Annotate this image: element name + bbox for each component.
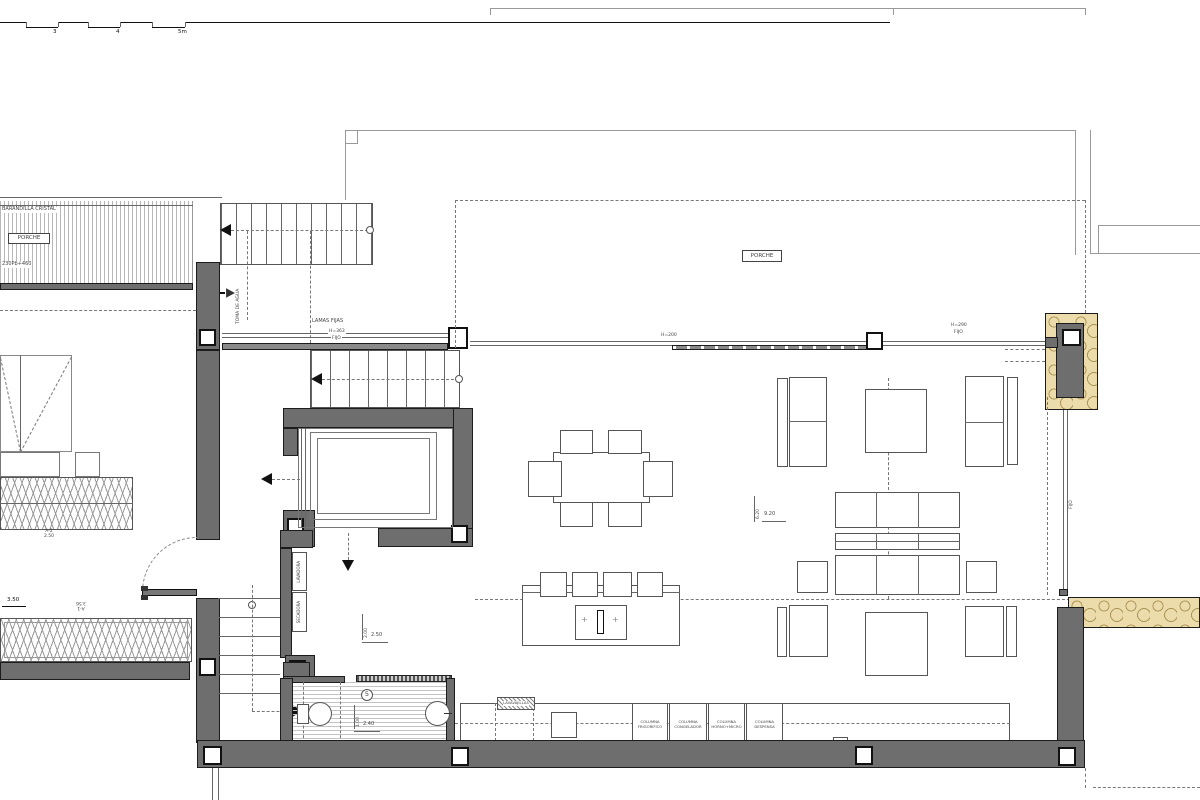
dim-text: 6.20 <box>756 497 761 519</box>
shaft-door-line <box>301 428 302 528</box>
cooktop-slot <box>597 610 604 634</box>
wall-edge-line <box>212 768 213 800</box>
label-a1: A-13.56 <box>66 598 96 612</box>
armchair <box>965 606 1004 657</box>
label-lamas-fijas: LAMAS FIJAS <box>311 319 344 325</box>
column <box>1058 747 1076 766</box>
sofa <box>835 492 960 528</box>
wall-segment <box>196 350 220 540</box>
door-hinge <box>141 595 148 600</box>
column <box>451 525 468 543</box>
walk-path <box>348 533 349 560</box>
dining-chair <box>560 502 593 527</box>
dim-line <box>754 496 755 522</box>
coffee-table-line <box>918 533 919 550</box>
bathroom-pocket-door <box>356 675 452 682</box>
elevator-car-inner <box>317 438 430 514</box>
dining-chair <box>560 430 593 454</box>
bar-stool <box>603 572 632 597</box>
dashed-overhang <box>455 200 1085 201</box>
dim-line <box>362 642 388 643</box>
dim-line <box>354 731 380 732</box>
dashed-extent <box>1085 768 1086 788</box>
armchair <box>1007 377 1018 465</box>
wall-edge-line <box>218 768 219 800</box>
porch-parapet-wall <box>0 283 193 290</box>
dim-text: 2.40 <box>363 722 374 728</box>
direction-arrow-icon <box>342 560 354 571</box>
glazing-line <box>1063 410 1064 590</box>
label-h290-fijo: FIJO <box>953 330 964 335</box>
terrace-parapet <box>0 662 190 680</box>
label-h200: H=200 <box>660 333 678 338</box>
stair-walkline <box>322 379 454 380</box>
label-350: 3.50 <box>6 597 20 603</box>
stair-entry <box>218 598 280 694</box>
facade-band <box>672 345 881 350</box>
armchair <box>777 378 788 467</box>
shaft-door-line <box>305 428 306 528</box>
scale-bar: 3 4 5m <box>0 14 900 40</box>
counter-sink <box>551 712 577 738</box>
dashed-extent <box>1093 787 1200 788</box>
appliance-lavavajillas: LAVAVAJILLAS <box>497 697 535 710</box>
dashed-overhang <box>1047 397 1048 595</box>
armchair <box>789 377 827 467</box>
stair-walkline <box>231 230 368 231</box>
glazing-line <box>1067 410 1068 590</box>
dim-text: 9.20 <box>764 512 775 518</box>
sofa-seam <box>918 555 919 595</box>
pillar-tab <box>1045 337 1058 348</box>
washbasin-spout <box>444 713 452 714</box>
entry-door-leaf <box>142 589 197 596</box>
floor-plan: 3 4 5m BARANDILLA CRISTAL PORCHE 230Pb+4… <box>0 0 1200 800</box>
door-swing-arc <box>142 537 197 592</box>
scale-label: 3 <box>53 29 57 35</box>
dim-text: 1.00 <box>356 707 361 727</box>
roof-top-tick <box>1085 8 1086 15</box>
label-toma-de-agua: TOMA DE AGUA <box>236 268 241 324</box>
scale-label: 5m <box>178 29 187 35</box>
roof-outline <box>1075 130 1076 255</box>
label-window-fijo: FIJO <box>331 336 342 341</box>
label-porche-main: PORCHE <box>742 250 782 262</box>
sofa-seam <box>876 555 877 595</box>
door-hinge <box>141 586 148 591</box>
room-number-badge: 5 <box>361 689 373 701</box>
stone-wall-band <box>1068 597 1200 628</box>
column <box>451 747 469 766</box>
roof-outline <box>1090 130 1091 253</box>
label-level: 230Pb+460 <box>1 262 32 268</box>
column <box>855 746 873 765</box>
dashed-guide <box>310 231 311 348</box>
dining-chair <box>643 461 673 497</box>
roof-top-line <box>490 8 1085 9</box>
appliance-lavadora: LAVADORA <box>292 552 307 591</box>
side-table <box>865 389 927 453</box>
column <box>199 658 216 676</box>
roof-outline <box>1098 225 1099 253</box>
dim-text: 2.50 <box>371 633 382 639</box>
armchair <box>966 561 997 593</box>
coffee-table-line <box>835 541 960 542</box>
wall-segment <box>280 530 313 548</box>
glazing-line <box>470 341 1056 342</box>
facade-band <box>222 343 448 350</box>
direction-arrow-icon <box>220 224 231 236</box>
coffee-table-line <box>876 533 877 550</box>
terrace-stool <box>75 452 100 477</box>
label-h290: H=290 <box>950 323 968 328</box>
roof-outline <box>345 130 346 200</box>
armchair <box>797 561 828 593</box>
walkline-start-circle <box>455 375 463 383</box>
column <box>1062 329 1081 346</box>
armchair <box>789 605 828 657</box>
roof-outline <box>357 130 358 144</box>
roof-outline <box>345 130 1075 131</box>
column <box>866 332 883 350</box>
burner-mark: + <box>612 615 619 624</box>
roof-outline <box>1098 225 1200 226</box>
column <box>448 327 468 349</box>
appliance-secadora: SECADORA <box>292 592 307 632</box>
porch-edge-line <box>0 197 222 198</box>
roof-outline <box>1090 253 1200 254</box>
dashed-track <box>1005 361 1045 362</box>
direction-arrow-icon <box>261 473 272 485</box>
armchair <box>1006 606 1017 657</box>
dashed-guide <box>340 682 341 743</box>
sofa-seam <box>918 492 919 528</box>
armchair-seam <box>965 422 1004 423</box>
dining-chair <box>608 502 642 527</box>
dashed-porch <box>0 310 196 311</box>
terrace-structure-line <box>20 355 21 452</box>
dim-line <box>362 614 363 640</box>
wall-bottom <box>197 740 1085 768</box>
elevator-wall-left <box>283 428 298 456</box>
dining-chair <box>528 461 562 497</box>
louver-band-inner <box>4 622 188 658</box>
bar-stool <box>572 572 598 597</box>
sofa <box>835 555 960 595</box>
burner-mark: + <box>581 615 588 624</box>
dim-line <box>2 606 26 607</box>
armchair <box>777 607 787 657</box>
sofa-seam <box>876 492 877 528</box>
scale-label: 4 <box>116 29 120 35</box>
entry-walkline <box>252 585 253 711</box>
dining-chair <box>608 430 642 454</box>
dining-table <box>553 452 650 503</box>
louver-band-line <box>0 503 133 504</box>
label-barandilla: BARANDILLA CRISTAL <box>1 207 57 213</box>
walk-path <box>272 479 300 480</box>
dashed-overhang <box>1085 200 1086 313</box>
label-right-fijo: FIJO <box>1069 487 1074 509</box>
direction-arrow-icon <box>311 373 322 385</box>
stair-exterior <box>220 203 373 265</box>
water-point-icon <box>226 288 235 298</box>
wall-segment <box>1057 607 1084 747</box>
column <box>203 746 222 765</box>
bar-stool <box>637 572 663 597</box>
roof-outline <box>345 143 358 144</box>
bathroom-wall-left <box>280 678 293 744</box>
dim-text: 2.00 <box>364 616 369 638</box>
elevator-wall-top <box>283 408 473 428</box>
wall-segment <box>280 548 292 658</box>
dashed-guide <box>247 231 248 320</box>
label-window-height: H=363 <box>328 329 346 334</box>
terrace-bench <box>0 452 60 477</box>
dashed-track <box>1005 349 1045 350</box>
column <box>199 329 216 346</box>
walkline-start-circle <box>366 226 374 234</box>
label-a2: A-22.50 <box>34 527 64 541</box>
toilet-bowl <box>308 702 332 726</box>
glazing-end-cap <box>1059 589 1068 596</box>
label-porche-left: PORCHE <box>8 233 50 244</box>
dim-line <box>354 705 355 729</box>
side-table <box>865 612 928 676</box>
dim-line <box>762 521 786 522</box>
dashed-overhang <box>455 200 456 368</box>
bar-stool <box>540 572 567 597</box>
armchair-seam <box>789 421 827 422</box>
